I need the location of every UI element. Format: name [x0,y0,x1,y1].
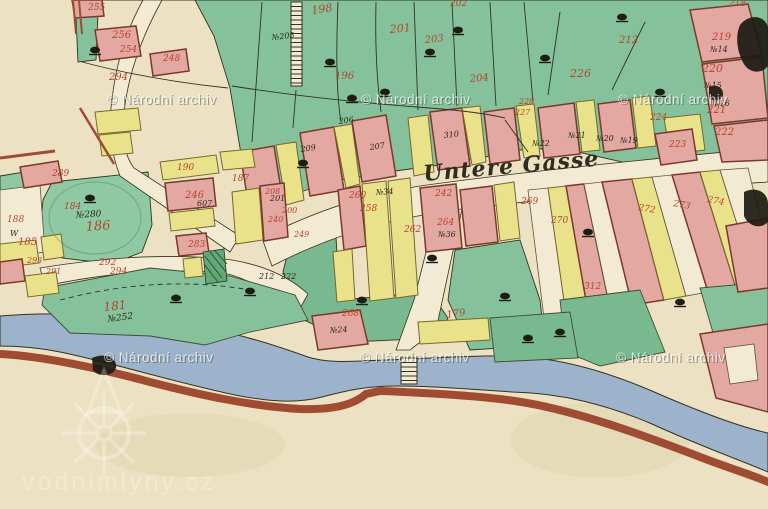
house-number-label: №14 [709,45,728,54]
watermark-text: © Národní archiv [360,350,470,365]
tree-crown [675,299,685,306]
parcel-number-label: 294 [108,72,128,83]
tree-crown [85,195,95,202]
parcel-number-label: 201 [388,21,411,36]
bridge-outline [291,2,302,86]
watermark-text: © Národní archiv [616,350,726,365]
parcel-number-label: 283 [187,240,205,250]
watermark-text: © Národní archiv [618,92,728,107]
map-canvas: 2552562542482942891981962012032042022122… [0,0,768,509]
building [183,257,203,278]
tree-crown [325,59,335,66]
house-number-label: 607 [197,199,213,208]
logo-watermark-text: vodnimlyny.cz [22,468,216,496]
parcel-number-label: 203 [423,33,444,46]
tree-crown [555,329,565,336]
parcel-number-label: 260 [348,191,366,201]
parcel-number-label: 289 [51,169,69,179]
parcel-number-label: 224 [649,113,667,123]
parcel-number-label: 293 [26,256,42,265]
house-number-label: №34 [375,187,394,197]
parcel-number-label: 188 [7,215,24,225]
house-number-label: №24 [329,325,348,335]
parcel-number-label: 294 [109,267,127,277]
tree-crown [171,295,181,302]
parcel-number-label: 248 [162,54,180,64]
ink-blot [744,190,768,227]
parcel-number-label: 186 [85,218,111,235]
house-number-label: №280 [75,209,103,221]
parcel-number-label: 212 [618,35,638,46]
parcel-number-label: 227 [514,108,531,117]
building [99,132,133,156]
parcel-number-label: 181 [103,298,127,314]
parcel-number-label: 312 [584,282,601,292]
parcel-number-label: 219 [711,32,732,43]
parcel-number-label: 222 [714,127,734,138]
building [220,149,255,170]
tree-crown [347,95,357,102]
crosshatch-garden [203,249,227,284]
parcel-number-label: 258 [359,204,377,214]
house-number-label: №20 [595,134,614,143]
tree-crown [617,14,627,21]
tree-crown [425,49,435,56]
parcel-number-label: 200 [281,206,297,215]
parcel-number-label: 220 [701,62,723,75]
tree-crown [583,229,593,236]
house-number-label: 201 [269,194,285,203]
tree-crown [500,293,510,300]
house-number-label: 212 [258,272,274,281]
house-number-label: №36 [437,230,456,239]
tree-crown [540,55,550,62]
parcel-number-label: 291 [45,267,61,276]
parcel-number-label: 268 [341,309,359,319]
watermark-text: © Národní archiv [104,350,214,365]
parcel-number-label: 262 [403,225,421,235]
house-number-label: 310 [443,129,459,140]
parcel-number-label: 254 [119,45,137,55]
building [0,259,25,284]
parcel-number-label: 255 [87,3,105,13]
scanned-cadastral-map: 2552562542482942891981962012032042022122… [0,0,768,509]
parcel-number-label: 256 [111,30,132,41]
house-number-label: №22 [531,139,550,148]
bridge-hatch [291,2,302,86]
parcel-number-label: 269 [520,197,538,207]
parcel-number-label: 270 [550,216,568,226]
garden-patch [203,249,227,284]
house-number-label: 222 [280,272,296,281]
tree-crown [245,288,255,295]
house-number-label: №19 [619,136,638,145]
parcel-number-label: 228 [518,97,534,106]
tree-crown [298,160,308,167]
parcel-number-label: 187 [232,174,249,184]
house-number-label: №21 [567,131,586,140]
parcel-number-label: 223 [668,140,686,150]
watermark-text: © Národní archiv [361,92,471,107]
parcel-number-label: 196 [335,71,355,82]
building [333,249,355,302]
parcel-number-label: 190 [177,163,194,173]
parcel-number-label: 240 [267,215,283,224]
parcel-number-label: 218 [728,0,746,9]
building [95,108,141,134]
house-number-label: №15 [703,81,722,90]
tree-crown [523,335,533,342]
parcel-number-label: 249 [293,230,309,239]
building [232,188,263,244]
parcel-number-label: 204 [468,72,489,85]
house-number-label: W [10,229,19,238]
parcel-number-label: 226 [569,67,591,80]
parcel-number-label: 242 [434,189,452,199]
tree-crown [90,47,100,54]
building [418,318,490,344]
parcel-number-label: 264 [436,218,454,228]
tree-crown [427,255,437,262]
tree-crown [453,27,463,34]
building [41,234,64,260]
parcel-number-label: 185 [18,237,37,248]
building [460,186,498,246]
building [724,344,758,384]
tree-crown [357,297,367,304]
watermark-text: © Národní archiv [107,92,217,107]
parcel-number-label: 202 [449,0,467,9]
